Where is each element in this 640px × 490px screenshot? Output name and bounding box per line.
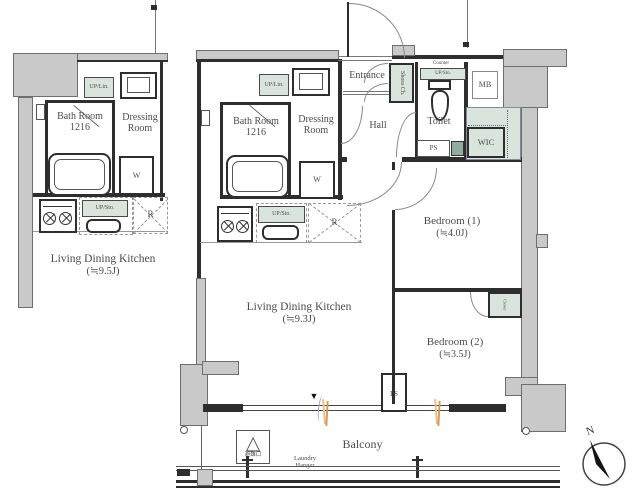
compass-circle [583,443,625,485]
railing-line [176,486,560,488]
bedroom2-label: Bedroom (2) (≒3.5J) [400,336,510,360]
window-sash [406,405,450,406]
right-ldk-label: Living Dining Kitchen (≒9.3J) [229,301,369,326]
room-name: Bath Room [40,111,120,122]
right-up-lin-cabinet: UP/Lin. [259,74,289,96]
bedroom1-label: Bedroom (1) (≒4.0J) [397,215,507,239]
window-sash [243,405,382,406]
toilet-up-sto-cabinet: UP/Sto. [420,68,466,80]
cabinet-label: Shoes Ch. [391,65,412,101]
stove-burner-icon [43,212,56,225]
bathtub-icon [226,155,289,198]
fridge-label: R [134,209,167,219]
wall-segment [77,60,168,62]
stove-burner-icon [236,220,249,233]
partition-line [201,425,202,470]
washer-label: W [313,175,321,184]
room-name: Bedroom (1) [397,215,507,228]
stove-grate [43,206,72,207]
room-name: Dressing [112,112,168,123]
glazing-mark [325,401,328,426]
toilet-door-swing [396,112,416,157]
cabinet-label: UP/Lin. [89,84,108,91]
railing-post [197,469,213,486]
wall-segment [196,278,206,370]
right-up-sto-cabinet: UP/Sto. [258,206,305,223]
bedroom-closet: Closet [488,292,522,318]
entrance-step [343,94,391,95]
boundary-line [467,0,468,48]
counter-label: Counter [421,61,461,67]
railing-line [176,480,560,483]
bathtub-inner [232,161,283,192]
wic-label: WIC [478,138,495,148]
meter-box: MB [472,71,498,99]
entrance-threshold [338,60,392,61]
cabinet-label: UP/Lin. [264,82,283,89]
pipe-space: PS [417,140,450,157]
storage-nook [451,141,464,156]
wall-segment [197,61,201,279]
window-sash [406,410,450,411]
entrance-step [343,91,391,92]
washer-label: W [133,171,141,180]
kitchen-sink-icon [262,225,299,240]
concrete-pillar [503,66,548,108]
closet-label: Closet [490,294,520,316]
railing-line [176,470,560,471]
compass-north-label: N [585,424,597,438]
wall-segment [220,102,291,105]
fridge-label: R [309,217,360,227]
boundary-tick [463,42,469,47]
pipe-space-label: PS [430,145,438,153]
boundary-tick [151,5,157,10]
cabinet-label: UP/Sto. [272,211,291,218]
wall-segment [449,404,506,412]
wall-segment [203,404,243,412]
laundry-line: Laundry [283,455,327,462]
kitchen-sink-icon [86,219,121,233]
room-name: Living Dining Kitchen [229,301,369,314]
laundry-pole-arm [412,459,423,461]
laundry-hanger-label: Laundry Hanger [283,455,327,470]
entrance-label: Entrance [341,70,393,81]
room-name: Bath Room [216,116,296,127]
right-dressing-label: Dressing Room [290,114,342,137]
stove-icon [217,206,253,242]
room-name: Room [290,125,342,136]
bathtub-icon [48,153,111,196]
stove-grate [221,213,249,214]
left-up-lin-cabinet: UP/Lin. [84,77,114,98]
right-bath-label: Bath Room 1216 [216,116,296,139]
wall-segment [196,59,342,62]
north-arrow-icon [590,440,610,479]
window-sash [243,410,382,411]
room-size: (≒9.5J) [33,266,173,278]
washer-space: W [119,156,154,195]
evacuation-hatch-icon: △ [246,435,261,452]
wall-step [536,234,548,248]
fridge-space: R [133,197,168,234]
meter-box-label: MB [479,80,491,89]
room-name: Room [112,123,168,134]
room-name: Bedroom (2) [400,336,510,349]
washbasin-bowl [127,77,150,93]
stove-burner-icon [59,212,72,225]
left-ldk-label: Living Dining Kitchen (≒9.5J) [33,253,173,278]
toilet-tank [428,80,451,90]
room-name: Living Dining Kitchen [33,253,173,266]
glazing-mark [437,401,440,426]
railing-anchor [177,469,190,476]
room-name: Dressing [290,114,342,125]
balcony-label: Balcony [325,438,400,452]
concrete-pillar [13,53,78,97]
room-size: (≒9.3J) [229,314,369,326]
fridge-space: R [308,203,361,243]
hall-label: Hall [356,120,400,131]
shoes-door-swing [364,83,388,102]
left-bath-label: Bath Room 1216 [40,111,120,134]
boundary-circle [522,427,530,435]
left-up-sto-cabinet: UP/Sto. [82,200,128,217]
room-size: 1216 [216,127,296,138]
room-size: 1216 [40,122,120,133]
room-size: (≒3.5J) [400,349,510,360]
concrete-pillar [503,49,567,67]
washbasin-bowl [299,73,323,90]
laundry-pole-arm [242,459,253,461]
shoes-cabinet: Shoes Ch. [389,63,414,103]
entrance-door-swing [349,3,405,58]
railing-line [176,466,560,467]
bedroom1-door-swing [395,168,437,210]
wall-segment [392,210,395,404]
concrete-pillar [18,97,33,308]
hanger-pipe-line [468,125,506,126]
cabinet-label: UP/Sto. [435,71,451,77]
bathtub-inner [54,159,105,190]
left-dressing-label: Dressing Room [112,112,168,135]
hanger-pipe-line [507,110,508,158]
boundary-circle [180,426,188,434]
ldk-door-swing [347,162,402,206]
wic-closet: WIC [467,127,505,158]
toilet-label: Toilet [417,116,461,127]
washer-space: W [299,161,335,199]
floor-plan-canvas: UP/Lin. Bath Room 1216 Dressing Room W U… [0,0,640,490]
wall-step [202,361,239,375]
cabinet-label: UP/Sto. [96,205,115,212]
closet-door-swing [470,292,488,317]
concrete-pillar [521,384,566,432]
stove-icon [39,199,77,233]
bath-control-panel [201,110,210,126]
stove-burner-icon [221,220,234,233]
wall-segment [45,100,115,103]
compass-icon: N [576,418,636,490]
room-size: (≒4.0J) [397,228,507,239]
